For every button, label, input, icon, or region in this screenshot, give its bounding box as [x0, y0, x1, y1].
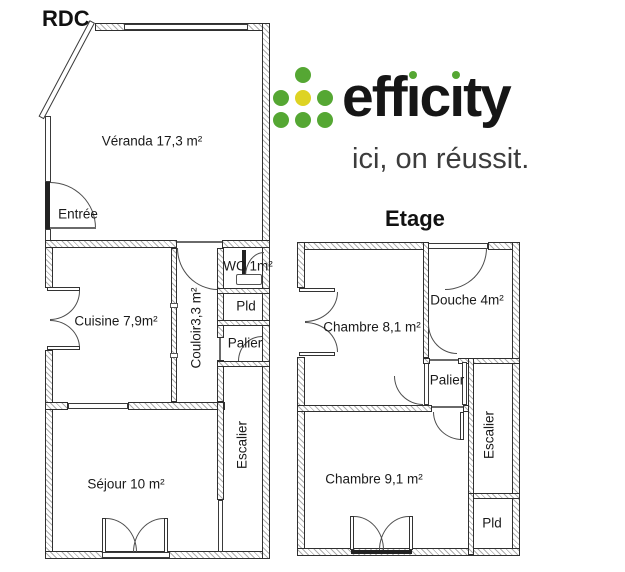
brand-wordmark: effıcıty — [342, 66, 510, 128]
door-arc — [445, 248, 487, 290]
door-arc — [177, 248, 218, 290]
wall — [423, 242, 429, 358]
room-label-entree: Entrée — [58, 207, 98, 222]
door-sill — [102, 552, 170, 558]
room-label-cuisine: Cuisine 7,9m² — [74, 314, 157, 329]
room-label-douche: Douche 4m² — [430, 293, 504, 308]
door-arc — [394, 376, 423, 405]
door-sill — [351, 550, 412, 554]
wall — [512, 242, 520, 556]
rdc-title: RDC — [42, 6, 90, 32]
wall — [423, 358, 430, 364]
logo-dot-green — [317, 90, 333, 106]
wall — [217, 402, 224, 500]
brand-text: c — [420, 65, 450, 129]
door-leaf — [409, 516, 413, 550]
room-label-wc: WC 1m² — [223, 259, 273, 274]
door-arc — [305, 292, 338, 322]
wall — [128, 402, 225, 410]
door-arc — [428, 324, 457, 354]
door-arc — [133, 518, 164, 552]
floor-plan-page: RDC — [0, 0, 625, 572]
window — [124, 24, 248, 30]
wall — [297, 405, 432, 412]
room-label-chambre2: Chambre 9,1 m² — [325, 472, 423, 487]
logo-dot-green — [295, 112, 311, 128]
door-opening — [430, 359, 458, 361]
door-jamb — [170, 303, 178, 308]
door-opening — [177, 241, 222, 243]
room-label-pld-etage: Pld — [482, 516, 502, 531]
wall — [424, 362, 429, 405]
room-label-palier-rdc: Palier — [228, 336, 263, 351]
wall — [468, 493, 474, 555]
i-dot-icon — [409, 71, 417, 79]
wall — [468, 493, 520, 499]
room-label-pld-rdc: Pld — [236, 299, 256, 314]
door-arc — [379, 516, 409, 550]
room-label-escalier-etage: Escalier — [482, 411, 497, 459]
brand-text: ty — [463, 65, 510, 129]
wall — [45, 402, 68, 410]
door-leaf — [164, 518, 168, 553]
washbasin — [236, 274, 262, 285]
door-panel — [218, 500, 223, 552]
wall — [297, 357, 305, 556]
wall — [297, 242, 428, 250]
door-leaf — [47, 346, 80, 350]
efficity-logo: effıcıty ici, on réussit. — [270, 58, 600, 188]
door-leaf — [50, 227, 96, 229]
door-jamb — [170, 353, 178, 358]
logo-dot-green — [317, 112, 333, 128]
door-opening — [219, 338, 221, 360]
wall — [45, 350, 53, 559]
door-arc — [433, 412, 462, 440]
etage-title: Etage — [385, 206, 445, 232]
room-label-veranda: Véranda 17,3 m² — [102, 134, 203, 149]
wall — [297, 242, 305, 288]
wall — [222, 240, 270, 248]
door-leaf — [460, 412, 464, 440]
door-leaf — [299, 352, 335, 356]
wall — [171, 248, 177, 402]
logo-dot-green — [273, 90, 289, 106]
room-label-chambre1: Chambre 8,1 m² — [323, 320, 421, 335]
room-label-sejour: Séjour 10 m² — [87, 477, 164, 492]
brand-tagline: ici, on réussit. — [352, 143, 529, 176]
room-label-couloir: Couloir3,3 m² — [189, 287, 204, 368]
wall — [45, 242, 53, 288]
logo-dot-green — [295, 67, 311, 83]
wall — [468, 358, 474, 497]
brand-text: eff — [342, 65, 406, 129]
wall — [45, 116, 51, 182]
wall — [217, 320, 270, 326]
room-label-escalier-rdc: Escalier — [235, 421, 250, 469]
logo-dot-yellow — [295, 90, 311, 106]
window — [68, 403, 128, 409]
door-opening — [432, 406, 463, 408]
wall — [217, 288, 270, 294]
room-label-palier-etage: Palier — [430, 373, 465, 388]
window-chamfer — [39, 20, 95, 119]
wall — [217, 361, 270, 367]
logo-dot-green — [273, 112, 289, 128]
wall — [45, 240, 177, 248]
